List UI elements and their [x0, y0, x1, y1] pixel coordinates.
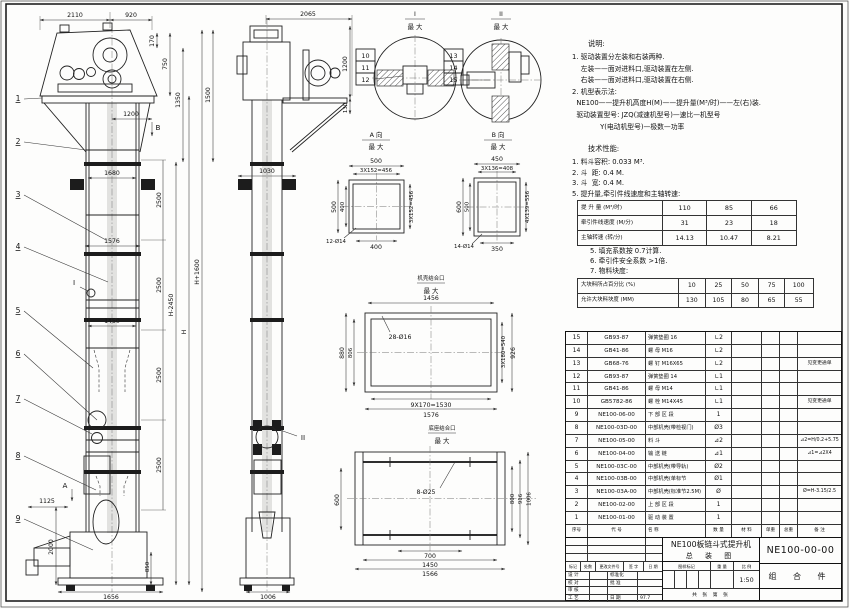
note-line: 2. 机型表示法:: [572, 87, 838, 99]
bom-cell: 料 斗: [646, 435, 706, 447]
side-view: II: [237, 18, 347, 592]
bom-cell: 序号: [566, 525, 588, 537]
svg-text:4: 4: [16, 242, 21, 251]
bom-table: 15GB93-87弹簧垫圈 16∟214GB41-86螺 母 M16∟213GB…: [565, 331, 842, 538]
bom-cell: 驱 动 装 置: [646, 512, 706, 524]
bom-row: 15GB93-87弹簧垫圈 16∟2: [566, 332, 841, 345]
svg-text:7: 7: [16, 394, 21, 403]
spec-line: 5. 填充系数按 0.7计算.: [590, 245, 830, 255]
svg-text:3X136=408: 3X136=408: [481, 166, 514, 172]
bom-cell: 上 部 区 段: [646, 499, 706, 511]
sig-row-check: 校 对 批 准: [566, 580, 662, 588]
bom-cell: NE100-03B-00: [588, 473, 646, 485]
bom-cell: NE100-05-00: [588, 435, 646, 447]
svg-text:2065: 2065: [300, 11, 316, 18]
spec-row-label: 大块料所占百分比 (%): [578, 279, 679, 293]
spec-line: 7. 物料块度:: [590, 265, 830, 275]
bom-cell: [762, 435, 780, 447]
bom-cell: Ø2: [706, 461, 732, 473]
svg-text:9X170=1530: 9X170=1530: [411, 402, 452, 409]
bom-cell: [780, 499, 798, 511]
bom-cell: [798, 512, 841, 524]
spec-value: 105: [706, 294, 733, 308]
svg-text:2: 2: [16, 137, 21, 146]
svg-text:1350: 1350: [175, 92, 182, 108]
bom-cell: [762, 448, 780, 460]
svg-text:1566: 1566: [422, 571, 438, 578]
svg-text:机壳结合口: 机壳结合口: [418, 274, 445, 282]
title-block-right: NE100-00-00 组 合 件: [760, 538, 841, 600]
svg-text:3X152=456: 3X152=456: [409, 190, 415, 223]
front-section-a-label: A: [63, 481, 68, 490]
svg-text:8: 8: [16, 451, 21, 460]
bom-row: 10GB5782-86螺 栓 M14X45∟1见变更通单: [566, 396, 841, 409]
bom-cell: [798, 473, 841, 485]
spec-row-label: 提 升 量 (M³/时): [578, 201, 663, 215]
bom-cell: ⊿1=⊿2X4: [798, 448, 841, 460]
bom-cell: 螺 钉 M16X65: [646, 358, 706, 370]
bom-cell: [780, 409, 798, 421]
svg-text:1576: 1576: [423, 412, 439, 419]
bom-row: 5NE100-03C-00中部机壳(带导轨)Ø2: [566, 461, 841, 474]
svg-text:500: 500: [370, 158, 382, 165]
svg-text:806: 806: [348, 347, 354, 358]
spec-value: 31: [663, 216, 707, 230]
bom-cell: [798, 332, 841, 344]
bom-row: 9NE100-06-00下 部 区 段1: [566, 409, 841, 422]
spec-value: 55: [785, 294, 812, 308]
stamp-header-row: 图样标记 重 量 比 例: [663, 562, 759, 571]
bom-cell: ∟1: [706, 383, 732, 395]
svg-text:2000: 2000: [48, 539, 55, 555]
svg-text:920: 920: [125, 12, 137, 19]
spec-value: 50: [732, 279, 759, 293]
bom-cell: 4: [566, 473, 588, 485]
bom-cell: [732, 371, 762, 383]
bom-cell: 螺 栓 M14X45: [646, 396, 706, 408]
bom-cell: [798, 371, 841, 383]
bom-cell: [798, 383, 841, 395]
bom-cell: [732, 473, 762, 485]
front-dimensions: 2110 920 170 750 1350 1500 1200 1680 157…: [28, 12, 213, 601]
spec-value: 85: [707, 201, 751, 215]
detail-i: I 最 大 10 11 12: [356, 10, 458, 121]
bom-cell: [762, 409, 780, 421]
bom-cell: NE100-06-00: [588, 409, 646, 421]
bom-cell: [732, 358, 762, 370]
svg-text:II: II: [499, 10, 503, 18]
side-section-ii-label: II: [301, 433, 305, 442]
bom-cell: [798, 409, 841, 421]
svg-text:1006: 1006: [527, 492, 533, 506]
bom-cell: [780, 345, 798, 357]
bom-cell: [780, 396, 798, 408]
bom-cell: [732, 383, 762, 395]
bom-cell: 代 号: [588, 525, 646, 537]
bom-cell: [762, 383, 780, 395]
scale-value: 1:50: [734, 571, 759, 588]
bom-cell: 5: [566, 461, 588, 473]
bom-cell: 数 量: [706, 525, 732, 537]
svg-text:5: 5: [16, 306, 21, 315]
bom-cell: [732, 396, 762, 408]
svg-text:1125: 1125: [39, 498, 55, 505]
spec-line: 1. 料斗容积: 0.033 M³.: [572, 156, 838, 167]
bom-cell: Ø: [706, 486, 732, 498]
bom-cell: Ø1: [706, 473, 732, 485]
bom-cell: [780, 461, 798, 473]
spec-value: 110: [663, 201, 707, 215]
rev-empty-row: [566, 546, 662, 554]
note-line: NE100——提升机高度H(M)——提升量(M³/时)——左(右)装.: [572, 98, 838, 110]
title-block-middle: NE100板链斗式提升机 总 装 图 图样标记 重 量 比 例 1:50 共 张…: [663, 538, 760, 600]
bom-cell: 中部机壳(带导轨): [646, 461, 706, 473]
bom-cell: [762, 461, 780, 473]
bom-cell: ∟1: [706, 371, 732, 383]
bom-header-row: 序号代 号名 称数 量材 料单重总重备 注: [566, 525, 841, 538]
note-line: 右装——面对进料口,驱动装置在右侧.: [572, 75, 838, 87]
spec-row-label: 牵引件线速度 (M/分): [578, 216, 663, 230]
specs-lines-2: 5. 填充系数按 0.7计算.6. 牵引件安全系数 >1倍.7. 物料块度:: [590, 245, 830, 275]
svg-text:600: 600: [334, 494, 341, 506]
bom-cell: [780, 512, 798, 524]
spec-table-row: 允许大块料块度 (MM)130105806555: [578, 293, 813, 308]
bom-cell: [762, 512, 780, 524]
bom-cell: 弹簧垫圈 14: [646, 371, 706, 383]
bom-cell: [798, 461, 841, 473]
bom-cell: [762, 371, 780, 383]
svg-text:750: 750: [162, 58, 169, 70]
bom-row: 13GB68-76螺 钉 M16X65∟2见变更通单: [566, 358, 841, 371]
bom-cell: 1: [706, 512, 732, 524]
bom-cell: GB93-87: [588, 371, 646, 383]
spec-value: 10.47: [707, 231, 751, 245]
bom-cell: NE100-03C-00: [588, 461, 646, 473]
bom-cell: ∟1: [706, 396, 732, 408]
svg-text:500: 500: [465, 201, 471, 212]
base-joint-detail: 底座结合口 最 大 8-Ø25 600 800 916 1006 700 145…: [334, 424, 536, 578]
front-section-b-label: B: [156, 123, 161, 132]
bom-cell: 3: [566, 486, 588, 498]
bom-row: 14GB41-86螺 母 M16∟2: [566, 345, 841, 358]
svg-text:15: 15: [449, 76, 457, 84]
bom-row: 12GB93-87弹簧垫圈 14∟1: [566, 371, 841, 384]
drawing-type: 总 装 图: [663, 551, 759, 561]
bom-cell: 螺 母 M16: [646, 345, 706, 357]
bom-cell: [762, 396, 780, 408]
spec-value: 80: [732, 294, 759, 308]
bom-cell: 11: [566, 383, 588, 395]
sig-row-design: 设 计 标准化: [566, 572, 662, 580]
bom-cell: 中部机壳(带检视门): [646, 422, 706, 434]
bom-row: 1NE100-01-00驱 动 装 置1: [566, 512, 841, 525]
svg-text:最 大: 最 大: [491, 142, 506, 151]
bom-cell: NE100-01-00: [588, 512, 646, 524]
bom-cell: [780, 448, 798, 460]
sheet-count: 共 张 第 张: [663, 589, 759, 602]
svg-text:最 大: 最 大: [369, 142, 384, 151]
bom-cell: 材 料: [732, 525, 762, 537]
bom-cell: 13: [566, 358, 588, 370]
note-line: Y(电动机型号)—极数—功率: [572, 122, 838, 134]
svg-text:12-Ø14: 12-Ø14: [326, 238, 346, 245]
bom-cell: [780, 383, 798, 395]
svg-text:H-2450: H-2450: [168, 294, 175, 317]
bom-row: 2NE100-02-00上 部 区 段1: [566, 499, 841, 512]
svg-text:I: I: [414, 10, 416, 18]
specs-block: 技术性能: 1. 料斗容积: 0.033 M³.2. 斗 距: 0.4 M.3.…: [572, 144, 838, 198]
svg-text:10: 10: [361, 52, 369, 60]
spec-line: 3. 斗 宽: 0.4 M.: [572, 177, 838, 188]
svg-text:800: 800: [510, 493, 516, 504]
bom-cell: 中部机壳(单标节1.5M,1M): [646, 473, 706, 485]
svg-text:H: H: [181, 329, 188, 334]
spec-table-row: 牵引件线速度 (M/分)312318: [578, 215, 796, 230]
bom-cell: 备 注: [798, 525, 841, 537]
sig-row-process: 工 艺 日 期97.7: [566, 595, 662, 603]
side-dimensions: 2065 1200 130 1030 1006: [238, 11, 352, 601]
bom-cell: 1: [706, 499, 732, 511]
bom-cell: Ø3: [706, 422, 732, 434]
svg-text:1450: 1450: [104, 318, 120, 325]
svg-text:最 大: 最 大: [435, 436, 450, 445]
svg-text:1: 1: [16, 94, 21, 103]
sig-row-audit: 审 核: [566, 587, 662, 595]
bom-cell: 名 称: [646, 525, 706, 537]
front-section-i-label: I: [73, 278, 75, 287]
bom-row: 11GB41-86螺 母 M14∟1: [566, 383, 841, 396]
svg-text:3X152=456: 3X152=456: [360, 168, 393, 174]
bom-cell: [780, 486, 798, 498]
spec-value: 130: [679, 294, 706, 308]
bom-cell: [732, 435, 762, 447]
svg-text:170: 170: [149, 35, 156, 47]
casing-joint-detail: 机壳结合口 最 大 1456 28-Ø16 880 806 3X180=540 …: [339, 274, 517, 419]
bom-cell: NE100-04-00: [588, 448, 646, 460]
notes-block: 说明: 1. 驱动装置分左装和右装两种. 左装——面对进料口,驱动装置在左侧. …: [572, 38, 838, 133]
svg-text:2500: 2500: [156, 192, 163, 208]
bom-cell: [780, 332, 798, 344]
bom-cell: GB41-86: [588, 383, 646, 395]
bom-cell: ⊿2: [706, 435, 732, 447]
svg-text:1456: 1456: [423, 295, 439, 302]
bom-cell: 9: [566, 409, 588, 421]
bom-cell: ∟2: [706, 358, 732, 370]
bom-cell: [732, 486, 762, 498]
title-block-left: 标记 处数 更改文件号 签 字 日 期 设 计 标准化 校 对 批 准 审 核 …: [566, 538, 663, 600]
rev-empty-row: [566, 538, 662, 546]
bom-cell: 总重: [780, 525, 798, 537]
bom-cell: [762, 473, 780, 485]
drawing-sheet: I B A 2110 920 170 750 1350 1500 1200 16…: [0, 0, 850, 609]
svg-text:9: 9: [16, 514, 21, 523]
bom-cell: [780, 358, 798, 370]
rev-header-row: 标记 处数 更改文件号 签 字 日 期: [566, 562, 662, 572]
svg-text:8-Ø25: 8-Ø25: [417, 488, 436, 496]
svg-text:2500: 2500: [156, 367, 163, 383]
bom-cell: [732, 409, 762, 421]
bom-cell: [732, 448, 762, 460]
bom-cell: NE100-02-00: [588, 499, 646, 511]
front-view: I B A: [26, 23, 163, 592]
bom-cell: 2: [566, 499, 588, 511]
bom-cell: Ø=H-3.15/2.5: [798, 486, 841, 498]
svg-text:350: 350: [491, 246, 503, 253]
bom-row: 4NE100-03B-00中部机壳(单标节1.5M,1M)Ø1: [566, 473, 841, 486]
svg-text:A 向: A 向: [370, 130, 383, 139]
weight-cell: [711, 571, 734, 588]
bom-cell: NE100-03D-00: [588, 422, 646, 434]
stamp-boxes: [663, 571, 711, 588]
spec-line: 2. 斗 距: 0.4 M.: [572, 167, 838, 178]
specs-lines: 1. 料斗容积: 0.033 M³.2. 斗 距: 0.4 M.3. 斗 宽: …: [572, 156, 838, 198]
view-a: A 向 最 大 500 3X152=456 500 400 3X152=456 …: [326, 130, 415, 251]
svg-text:1030: 1030: [259, 168, 275, 175]
bom-cell: [732, 499, 762, 511]
svg-text:880: 880: [339, 347, 346, 359]
bom-row: 7NE100-05-00料 斗⊿2⊿2=H/0.2+5.75: [566, 435, 841, 448]
note-line: 1. 驱动装置分左装和右装两种.: [572, 52, 838, 64]
bom-cell: GB68-76: [588, 358, 646, 370]
bom-cell: [762, 486, 780, 498]
svg-text:2110: 2110: [67, 12, 83, 19]
spec-value: 65: [759, 294, 786, 308]
svg-text:916: 916: [518, 493, 524, 504]
bom-cell: GB93-87: [588, 332, 646, 344]
bom-row: 8NE100-03D-00中部机壳(带检视门)Ø3: [566, 422, 841, 435]
svg-text:14-Ø14: 14-Ø14: [454, 243, 474, 250]
view-b: B 向 最 大 450 3X136=408 600 500 4X139=556 …: [454, 130, 531, 253]
spec-value: 18: [752, 216, 796, 230]
bom-cell: 14: [566, 345, 588, 357]
svg-text:700: 700: [424, 553, 436, 560]
bom-cell: ∟2: [706, 345, 732, 357]
svg-text:最 大: 最 大: [494, 22, 509, 31]
bom-cell: 8: [566, 422, 588, 434]
spec-value: 25: [706, 279, 733, 293]
spec-table-row: 大块料所占百分比 (%)10255075100: [578, 279, 813, 293]
svg-text:3: 3: [16, 190, 21, 199]
svg-text:600: 600: [456, 201, 463, 213]
spec-value: 10: [679, 279, 706, 293]
svg-text:2500: 2500: [156, 277, 163, 293]
bom-cell: [732, 345, 762, 357]
svg-text:500: 500: [331, 201, 338, 213]
bom-cell: [762, 332, 780, 344]
bom-cell: 12: [566, 371, 588, 383]
bom-cell: [780, 435, 798, 447]
bom-cell: 1: [566, 512, 588, 524]
bom-cell: [798, 422, 841, 434]
bom-cell: 中部机壳(标准节2.5M): [646, 486, 706, 498]
bom-cell: 下 部 区 段: [646, 409, 706, 421]
bom-cell: ⊿2=H/0.2+5.75: [798, 435, 841, 447]
bom-cell: ⊿1: [706, 448, 732, 460]
lump-size-table: 大块料所占百分比 (%)10255075100允许大块料块度 (MM)13010…: [577, 278, 814, 308]
bom-cell: [762, 345, 780, 357]
bom-cell: 1: [706, 409, 732, 421]
bom-cell: 弹簧垫圈 16: [646, 332, 706, 344]
svg-text:28-Ø16: 28-Ø16: [389, 333, 412, 341]
spec-value: 66: [752, 201, 796, 215]
bom-cell: 10: [566, 396, 588, 408]
bom-cell: 7: [566, 435, 588, 447]
bom-cell: [762, 499, 780, 511]
svg-text:450: 450: [491, 156, 503, 163]
bom-cell: [762, 358, 780, 370]
bom-cell: [780, 473, 798, 485]
spec-value: 14.13: [663, 231, 707, 245]
svg-text:400: 400: [370, 244, 382, 251]
bom-cell: [780, 422, 798, 434]
svg-text:1006: 1006: [260, 594, 276, 601]
spec-line: 6. 牵引件安全系数 >1倍.: [590, 255, 830, 265]
spec-row-label: 允许大块料块度 (MM): [578, 294, 679, 308]
bom-cell: NE100-03A-00: [588, 486, 646, 498]
bom-cell: [732, 461, 762, 473]
svg-text:13: 13: [449, 52, 457, 60]
bom-cell: 单重: [762, 525, 780, 537]
bom-cell: GB5782-86: [588, 396, 646, 408]
notes-lines: 1. 驱动装置分左装和右装两种. 左装——面对进料口,驱动装置在左侧. 右装——…: [572, 52, 838, 133]
svg-text:最 大: 最 大: [408, 22, 423, 31]
bom-cell: [780, 371, 798, 383]
bom-cell: [762, 422, 780, 434]
bom-cell: 见变更通单: [798, 358, 841, 370]
bom-cell: GB41-86: [588, 345, 646, 357]
spec-table-row: 提 升 量 (M³/时)1108566: [578, 201, 796, 215]
notes-title: 说明:: [572, 38, 838, 52]
svg-text:850: 850: [145, 561, 151, 572]
spec-table-row: 主轴转速 (转/分)14.1310.478.21: [578, 230, 796, 245]
bom-cell: ∟2: [706, 332, 732, 344]
bom-cell: 见变更通单: [798, 396, 841, 408]
svg-text:14: 14: [449, 64, 457, 72]
svg-text:4X139=556: 4X139=556: [525, 190, 531, 223]
title-block: 标记 处数 更改文件号 签 字 日 期 设 计 标准化 校 对 批 准 审 核 …: [565, 537, 842, 601]
detail-ii: II 最 大 13 14 15: [444, 10, 543, 122]
spec-line: 5. 提升量,牵引件线速度和主轴转速:: [572, 188, 838, 199]
svg-text:1200: 1200: [342, 56, 349, 72]
svg-text:400: 400: [340, 201, 346, 212]
spec-value: 8.21: [752, 231, 796, 245]
capacity-table: 提 升 量 (M³/时)1108566牵引件线速度 (M/分)312318主轴转…: [577, 200, 797, 246]
svg-text:1680: 1680: [104, 170, 120, 177]
svg-text:1576: 1576: [104, 238, 120, 245]
svg-text:6: 6: [16, 349, 21, 358]
bom-cell: 螺 母 M14: [646, 383, 706, 395]
svg-text:B 向: B 向: [492, 130, 505, 139]
svg-text:130: 130: [343, 102, 349, 113]
bom-cell: [732, 332, 762, 344]
svg-text:2500: 2500: [156, 457, 163, 473]
stamp-row: 1:50: [663, 571, 759, 589]
svg-text:最 大: 最 大: [424, 286, 439, 295]
rev-empty-row: [566, 554, 662, 562]
drawing-number: NE100-00-00: [760, 538, 841, 564]
bom-cell: [732, 422, 762, 434]
spec-row-label: 主轴转速 (转/分): [578, 231, 663, 245]
product-name: NE100板链斗式提升机: [663, 538, 759, 551]
svg-text:926: 926: [510, 347, 517, 359]
note-line: 左装——面对进料口,驱动装置在左侧.: [572, 64, 838, 76]
svg-text:1500: 1500: [205, 87, 212, 103]
spec-value: 100: [785, 279, 812, 293]
svg-text:11: 11: [361, 64, 369, 72]
bom-cell: 6: [566, 448, 588, 460]
spec-value: 23: [707, 216, 751, 230]
svg-text:1450: 1450: [422, 562, 438, 569]
